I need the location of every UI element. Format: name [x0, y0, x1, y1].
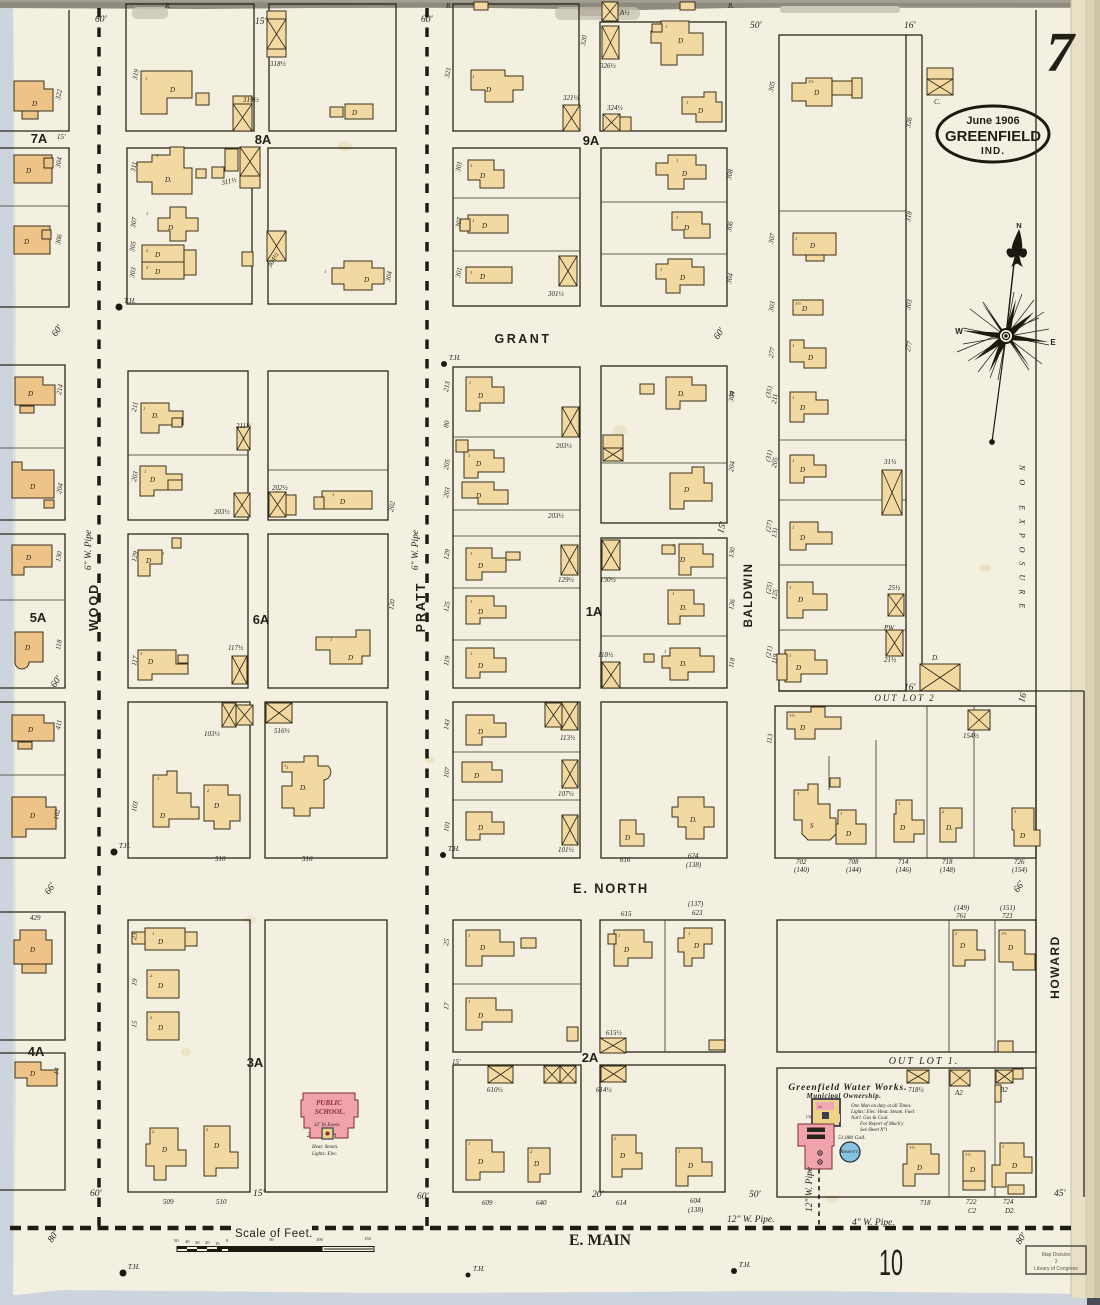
svg-text:107½: 107½ [558, 790, 575, 798]
svg-text:510: 510 [216, 1198, 227, 1206]
svg-text:D: D [795, 664, 801, 672]
svg-text:154½: 154½ [963, 732, 980, 740]
svg-text:T.H.: T.H. [449, 354, 461, 362]
svg-text:1: 1 [792, 525, 794, 530]
svg-text:Nat'l. Gas & Coal.: Nat'l. Gas & Coal. [850, 1116, 889, 1121]
svg-text:30: 30 [195, 1240, 200, 1245]
svg-text:723: 723 [1002, 912, 1013, 920]
svg-text:T.H.: T.H. [119, 842, 131, 850]
svg-text:12" W. Pipe.: 12" W. Pipe. [727, 1215, 774, 1225]
svg-text:203½: 203½ [556, 442, 573, 450]
svg-text:Air: Air [817, 1105, 823, 1109]
svg-text:1: 1 [286, 765, 288, 770]
svg-text:10: 10 [879, 1242, 903, 1283]
svg-text:150: 150 [364, 1236, 372, 1241]
svg-text:1: 1 [840, 811, 842, 816]
svg-text:1: 1 [618, 933, 620, 938]
svg-text:WOOD: WOOD [87, 583, 101, 631]
svg-text:For Report of Mach'y: For Report of Mach'y [859, 1122, 904, 1127]
svg-text:321½: 321½ [562, 94, 580, 102]
svg-text:1: 1 [898, 801, 900, 806]
svg-text:1: 1 [688, 931, 690, 936]
svg-text:40: 40 [185, 1239, 190, 1244]
svg-text:D: D [799, 404, 805, 412]
svg-text:D: D [473, 772, 479, 780]
svg-text:411: 411 [54, 719, 64, 730]
svg-text:129½: 129½ [558, 576, 575, 584]
svg-text:D: D [24, 644, 30, 652]
svg-text:PW: PW [883, 624, 895, 632]
svg-text:8A: 8A [255, 132, 272, 147]
svg-text:D: D [145, 557, 151, 565]
svg-text:1½: 1½ [808, 79, 814, 84]
svg-text:GRANT: GRANT [495, 332, 552, 346]
svg-text:1: 1 [146, 211, 148, 216]
svg-text:60': 60' [90, 1189, 103, 1199]
svg-text:D: D [683, 224, 689, 232]
svg-text:1: 1 [156, 153, 158, 158]
svg-text:3A: 3A [247, 1055, 264, 1070]
svg-text:101½: 101½ [558, 846, 575, 854]
svg-text:D: D [29, 1070, 35, 1078]
svg-text:R.: R. [445, 2, 452, 10]
svg-text:D: D [147, 658, 153, 666]
svg-text:D: D [363, 276, 369, 284]
svg-text:D: D [169, 86, 175, 94]
svg-text:702: 702 [796, 858, 807, 866]
svg-text:32' To Eaves.: 32' To Eaves. [314, 1123, 341, 1128]
svg-text:E: E [1050, 338, 1056, 347]
svg-text:1: 1 [468, 933, 470, 938]
svg-text:D: D [799, 534, 805, 542]
svg-text:1: 1 [470, 270, 472, 275]
svg-text:50: 50 [269, 1237, 274, 1242]
svg-text:516: 516 [302, 855, 313, 863]
svg-text:D: D [797, 596, 803, 604]
svg-text:25½: 25½ [888, 584, 901, 592]
svg-text:One Man on duty at all Times.: One Man on duty at all Times. [851, 1104, 912, 1109]
svg-text:1: 1 [672, 591, 674, 596]
svg-text:D: D [479, 273, 485, 281]
svg-text:324½: 324½ [606, 104, 624, 112]
svg-text:D: D [159, 812, 165, 820]
svg-text:A½: A½ [619, 9, 630, 17]
svg-text:4" W. Pipe.: 4" W. Pipe. [852, 1218, 895, 1228]
svg-text:D: D [154, 268, 160, 276]
svg-text:D: D [167, 224, 173, 232]
svg-text:GREENFIELD: GREENFIELD [945, 128, 1041, 145]
svg-text:1: 1 [162, 551, 164, 556]
svg-text:1: 1 [792, 395, 794, 400]
svg-text:D: D [477, 562, 483, 570]
svg-text:31½: 31½ [883, 458, 897, 466]
svg-text:1: 1 [472, 74, 474, 79]
svg-text:1A: 1A [586, 604, 603, 619]
svg-text:D: D [845, 830, 851, 838]
svg-text:1: 1 [324, 269, 326, 274]
svg-text:D: D [154, 251, 160, 259]
svg-text:D: D [477, 1158, 483, 1166]
svg-text:1: 1 [143, 406, 145, 411]
svg-text:D.: D. [679, 604, 687, 612]
svg-text:614: 614 [616, 1199, 627, 1207]
svg-text:15': 15' [452, 1058, 461, 1066]
svg-text:50': 50' [749, 1190, 762, 1200]
svg-text:2: 2 [307, 1131, 311, 1139]
svg-text:D: D [157, 1024, 163, 1032]
svg-text:12" W. Pipe: 12" W. Pipe [805, 1167, 815, 1212]
svg-text:640: 640 [536, 1199, 547, 1207]
svg-text:1: 1 [789, 585, 791, 590]
svg-text:(144): (144) [846, 866, 862, 874]
svg-text:1: 1 [678, 1149, 680, 1154]
svg-text:211: 211 [130, 401, 140, 412]
svg-text:1: 1 [470, 551, 472, 556]
svg-text:D: D [959, 942, 965, 950]
svg-text:T.H.: T.H. [128, 1263, 140, 1271]
svg-text:C.: C. [934, 98, 941, 106]
svg-text:6" W. Pipe: 6" W. Pipe [84, 530, 94, 570]
svg-text:D: D [916, 1164, 922, 1172]
svg-text:326½: 326½ [599, 62, 617, 70]
svg-text:610½: 610½ [487, 1086, 504, 1094]
svg-text:15': 15' [57, 133, 66, 141]
svg-text:D.: D. [677, 390, 685, 398]
svg-text:S: S [810, 822, 814, 830]
svg-text:D: D [1011, 1162, 1017, 1170]
svg-text:D: D [475, 460, 481, 468]
svg-text:1: 1 [672, 543, 674, 548]
svg-text:D: D [697, 107, 703, 115]
svg-text:E. NORTH: E. NORTH [573, 880, 649, 896]
svg-text:T.H.: T.H. [448, 845, 460, 853]
svg-text:9A: 9A [583, 133, 600, 148]
svg-text:21½: 21½ [884, 656, 897, 664]
svg-text:10: 10 [215, 1241, 220, 1246]
svg-text:D: D [477, 1012, 483, 1020]
svg-text:1: 1 [468, 999, 470, 1004]
svg-text:D: D [619, 1152, 625, 1160]
svg-text:D.: D. [931, 654, 939, 662]
svg-text:708: 708 [848, 858, 859, 866]
svg-text:761: 761 [956, 912, 967, 920]
svg-text:D: D [1007, 944, 1013, 952]
svg-text:D: D [799, 724, 805, 732]
svg-text:D: D [477, 392, 483, 400]
svg-text:Lights: Elec.: Lights: Elec. [311, 1152, 338, 1157]
svg-text:211: 211 [770, 393, 780, 404]
svg-text:D: D [29, 812, 35, 820]
svg-text:604: 604 [690, 1197, 701, 1205]
svg-text:1: 1 [470, 651, 472, 656]
svg-text:103½: 103½ [204, 730, 221, 738]
svg-text:113½: 113½ [560, 734, 576, 742]
svg-text:(138): (138) [686, 861, 702, 869]
svg-text:1: 1 [660, 267, 662, 272]
svg-text:D: D [679, 274, 685, 282]
svg-text:722: 722 [966, 1198, 977, 1206]
svg-text:1: 1 [469, 380, 471, 385]
svg-text:PRATT: PRATT [414, 582, 428, 633]
svg-text:15': 15' [255, 17, 268, 27]
svg-text:Reserv'r.: Reserv'r. [839, 1149, 859, 1155]
svg-text:D: D [339, 498, 345, 506]
svg-text:1: 1 [468, 453, 470, 458]
svg-text:NO EXPOSURE: NO EXPOSURE [1018, 464, 1027, 617]
svg-text:60': 60' [417, 1192, 430, 1202]
svg-text:D: D [809, 242, 815, 250]
svg-text:D: D [477, 608, 483, 616]
svg-text:(151): (151) [1000, 904, 1016, 912]
svg-text:615½: 615½ [606, 1029, 623, 1037]
svg-text:D: D [679, 556, 685, 564]
svg-text:301½: 301½ [547, 290, 565, 298]
svg-text:1½: 1½ [965, 1152, 971, 1157]
svg-text:D: D [351, 109, 357, 117]
svg-text:429: 429 [30, 914, 41, 922]
svg-text:OUT LOT 1.: OUT LOT 1. [889, 1056, 960, 1067]
svg-text:714: 714 [898, 858, 909, 866]
svg-text:211½: 211½ [236, 422, 252, 430]
svg-text:D: D [477, 824, 483, 832]
svg-text:516½: 516½ [274, 727, 291, 735]
svg-text:D: D [623, 946, 629, 954]
svg-text:(149): (149) [954, 904, 970, 912]
svg-text:D: D [479, 944, 485, 952]
svg-text:D.: D. [164, 176, 172, 184]
svg-text:2A: 2A [582, 1050, 599, 1065]
svg-text:1½: 1½ [789, 713, 795, 718]
svg-text:1: 1 [332, 492, 334, 497]
svg-text:60': 60' [421, 15, 434, 25]
svg-text:E. MAIN: E. MAIN [569, 1232, 631, 1249]
svg-text:D: D [799, 466, 805, 474]
svg-text:(137): (137) [688, 900, 704, 908]
svg-text:1½: 1½ [909, 1145, 915, 1150]
svg-text:6A: 6A [253, 612, 270, 627]
svg-text:D: D [681, 170, 687, 178]
svg-text:D: D [485, 86, 491, 94]
svg-text:202½: 202½ [272, 484, 289, 492]
svg-text:D: D [477, 728, 483, 736]
svg-text:D.: D. [299, 784, 307, 792]
svg-text:7: 7 [1046, 22, 1076, 84]
svg-text:1: 1 [792, 343, 794, 348]
svg-text:D: D [149, 476, 155, 484]
svg-text:1: 1 [140, 651, 142, 656]
svg-text:See Sheet Nº1: See Sheet Nº1 [860, 1127, 888, 1133]
svg-text:1: 1 [468, 1141, 470, 1146]
svg-text:1: 1 [470, 163, 472, 168]
svg-text:6" W. Pipe: 6" W. Pipe [411, 530, 421, 570]
svg-text:117½: 117½ [228, 644, 244, 652]
svg-text:203½: 203½ [548, 512, 565, 520]
svg-text:D: D [29, 483, 35, 491]
svg-text:1: 1 [157, 776, 159, 781]
svg-text:W: W [955, 327, 963, 336]
svg-text:724: 724 [1003, 1198, 1014, 1206]
svg-text:D: D [213, 1142, 219, 1150]
svg-text:D.: D. [151, 412, 159, 420]
svg-text:D: D [29, 946, 35, 954]
svg-text:Lights: Elec. Heat. Steam. Fue: Lights: Elec. Heat. Steam. Fuel: [850, 1110, 916, 1115]
svg-text:Heat: Steam.: Heat: Steam. [311, 1145, 338, 1150]
svg-text:D: D [477, 662, 483, 670]
svg-text:1: 1 [792, 458, 794, 463]
svg-text:51,080 Gall.: 51,080 Gall. [838, 1135, 866, 1141]
svg-text:45': 45' [1054, 1189, 1067, 1199]
svg-text:D: D [157, 938, 163, 946]
svg-text:D: D [27, 726, 33, 734]
svg-text:614½: 614½ [596, 1086, 613, 1094]
svg-text:D: D [533, 1160, 539, 1168]
svg-text:1: 1 [284, 763, 286, 768]
svg-text:1: 1 [686, 100, 688, 105]
svg-text:D.: D. [945, 824, 953, 832]
svg-text:D: D [157, 982, 163, 990]
svg-text:130½: 130½ [600, 576, 617, 584]
svg-text:319½: 319½ [242, 96, 260, 104]
svg-text:(154): (154) [1012, 866, 1028, 874]
svg-text:1: 1 [152, 931, 154, 936]
svg-text:D: D [1019, 832, 1025, 840]
svg-text:1: 1 [144, 469, 146, 474]
svg-text:D: D [813, 89, 819, 97]
svg-text:509: 509 [163, 1198, 174, 1206]
svg-text:D: D [801, 305, 807, 313]
svg-text:T.H.: T.H. [473, 1265, 485, 1273]
svg-text:50': 50' [750, 21, 763, 31]
svg-text:June 1906: June 1906 [966, 115, 1019, 127]
svg-text:D: D [693, 942, 699, 950]
svg-text:A2: A2 [954, 1089, 963, 1097]
svg-text:203½: 203½ [214, 508, 231, 516]
svg-text:C2: C2 [968, 1207, 977, 1215]
svg-text:D: D [475, 492, 481, 500]
svg-text:T.H.: T.H. [739, 1261, 751, 1269]
svg-text:D: D [161, 1146, 167, 1154]
svg-text:R.: R. [727, 2, 734, 10]
svg-text:1: 1 [789, 653, 791, 658]
svg-text:D: D [25, 554, 31, 562]
svg-text:718½: 718½ [908, 1086, 925, 1094]
svg-text:20: 20 [205, 1240, 210, 1245]
svg-text:PUBLIC: PUBLIC [316, 1099, 342, 1107]
svg-text:718: 718 [942, 858, 953, 866]
svg-text:D: D [899, 824, 905, 832]
svg-text:318½: 318½ [269, 60, 287, 68]
svg-text:D: D [683, 486, 689, 494]
svg-text:5A: 5A [30, 610, 47, 625]
svg-text:D: D [31, 100, 37, 108]
svg-text:1: 1 [795, 236, 797, 241]
svg-text:16': 16' [904, 21, 917, 31]
svg-text:T.H.: T.H. [124, 297, 136, 305]
svg-text:(146): (146) [896, 866, 912, 874]
svg-text:D: D [479, 172, 485, 180]
svg-text:R.: R. [164, 2, 171, 10]
svg-text:D2.: D2. [1004, 1207, 1016, 1215]
svg-text:Map Division: Map Division [1042, 1252, 1071, 1258]
svg-text:D: D [23, 238, 29, 246]
svg-text:624: 624 [688, 852, 699, 860]
svg-text:BALDWIN: BALDWIN [743, 563, 755, 628]
svg-text:IND.: IND. [981, 146, 1005, 157]
svg-text:D: D [624, 834, 630, 842]
svg-text:(140): (140) [794, 866, 810, 874]
svg-text:1½: 1½ [1001, 931, 1007, 936]
svg-text:616: 616 [620, 856, 631, 864]
svg-text:D: D [969, 1166, 975, 1174]
svg-text:3: 3 [1055, 1259, 1058, 1265]
svg-text:D: D [807, 354, 813, 362]
svg-text:D: D [481, 222, 487, 230]
svg-text:4A: 4A [28, 1044, 45, 1059]
svg-text:D: D [27, 390, 33, 398]
svg-text:615: 615 [621, 910, 632, 918]
svg-text:1: 1 [664, 649, 666, 654]
svg-text:623: 623 [692, 909, 703, 917]
svg-text:50: 50 [174, 1238, 179, 1243]
svg-text:D.: D. [679, 660, 687, 668]
svg-text:D.: D. [689, 816, 697, 824]
svg-text:1: 1 [145, 76, 147, 81]
svg-text:HOWARD: HOWARD [1048, 935, 1062, 999]
svg-text:1: 1 [797, 791, 799, 796]
svg-text:1: 1 [676, 215, 678, 220]
svg-text:1: 1 [1002, 1144, 1004, 1149]
svg-text:7A: 7A [31, 131, 48, 146]
svg-text:1: 1 [665, 24, 667, 29]
svg-text:718: 718 [920, 1199, 931, 1207]
svg-text:100: 100 [316, 1237, 324, 1242]
svg-text:N: N [1016, 221, 1021, 230]
svg-text:1: 1 [470, 599, 472, 604]
svg-text:1: 1 [472, 218, 474, 223]
svg-text:Scale of Feet.: Scale of Feet. [235, 1228, 313, 1240]
svg-text:D: D [25, 167, 31, 175]
svg-text:726: 726 [1014, 858, 1025, 866]
svg-text:B2: B2 [1000, 1086, 1008, 1094]
svg-text:D: D [687, 1162, 693, 1170]
svg-text:SCHOOL.: SCHOOL. [315, 1108, 345, 1116]
svg-text:1: 1 [676, 158, 678, 163]
svg-text:609: 609 [482, 1199, 493, 1207]
svg-text:1½: 1½ [795, 301, 801, 306]
svg-text:D: D [677, 37, 683, 45]
svg-text:D: D [213, 802, 219, 810]
svg-text:60': 60' [95, 15, 108, 25]
svg-text:(138): (138) [688, 1206, 704, 1214]
svg-text:Library of Congress: Library of Congress [1034, 1266, 1078, 1272]
svg-text:15': 15' [253, 1189, 266, 1199]
svg-text:1: 1 [330, 637, 332, 642]
svg-text:(148): (148) [940, 866, 956, 874]
svg-text:510: 510 [215, 855, 226, 863]
svg-text:D: D [347, 654, 353, 662]
svg-text:OUT LOT 2: OUT LOT 2 [874, 693, 935, 703]
svg-text:1: 1 [1014, 809, 1016, 814]
